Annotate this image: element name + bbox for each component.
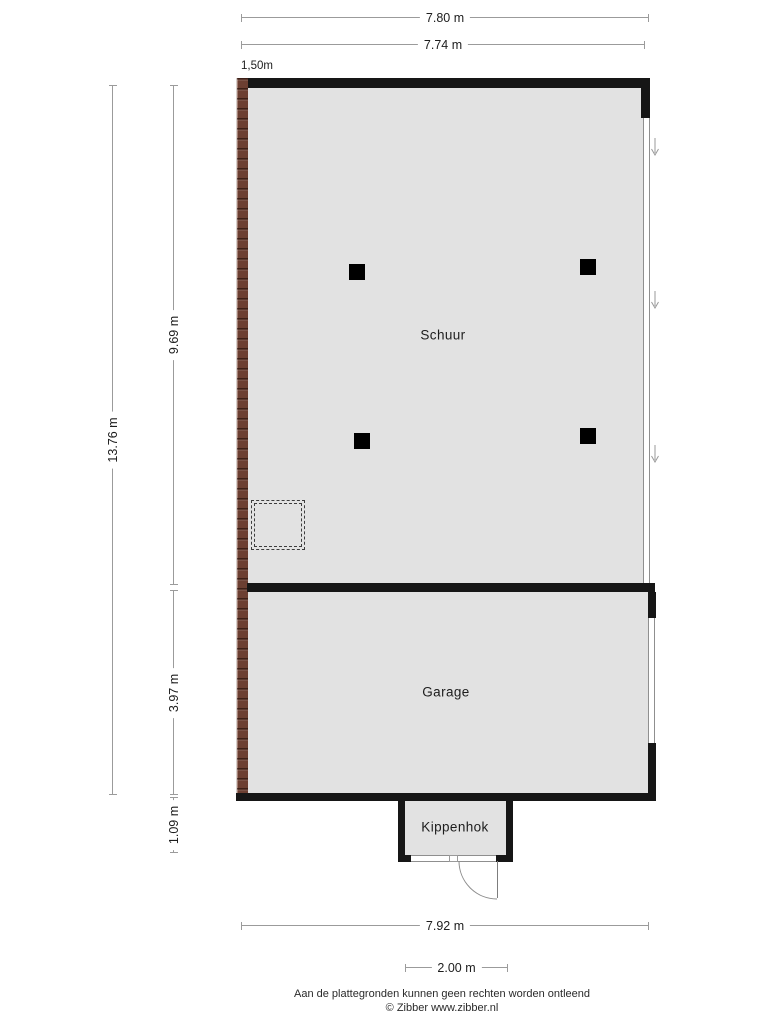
dim-width-outer: 7.80 m	[241, 17, 649, 18]
kippenhok-bottom-wall-left	[398, 855, 411, 862]
slide-direction-arrow-icon	[650, 291, 660, 311]
room-label-schuur: Schuur	[420, 328, 465, 343]
dim-garage-depth: 3.97 m	[173, 590, 174, 795]
dim-width-outer-label: 7.80 m	[420, 11, 470, 25]
room-label-kippenhok: Kippenhok	[421, 820, 488, 835]
slide-direction-arrow-icon	[650, 138, 660, 158]
wall-height-note: 1,50m	[241, 60, 273, 72]
dim-kippenhok-width: 2.00 m	[405, 967, 508, 968]
pillar	[580, 259, 596, 275]
garage-right-wall-top	[648, 592, 656, 618]
dim-height-total-label: 13.76 m	[106, 411, 120, 468]
pillar	[349, 264, 365, 280]
pillar	[580, 428, 596, 444]
floorplan-page: { "plan": { "rooms": [ { "name": "Schuur…	[0, 0, 768, 1024]
pillar	[354, 433, 370, 449]
slide-direction-arrow-icon	[650, 445, 660, 465]
dim-kippenhok-depth: 1.09 m	[173, 797, 174, 853]
dim-kippenhok-width-label: 2.00 m	[431, 961, 481, 975]
footer-credit: © Zibber www.zibber.nl	[130, 1001, 754, 1015]
dim-kippenhok-depth-label: 1.09 m	[167, 800, 181, 850]
dim-schuur-depth: 9.69 m	[173, 85, 174, 585]
garage-bottom-wall	[236, 793, 656, 801]
schuur-top-wall	[238, 78, 650, 88]
dim-width-bottom-label: 7.92 m	[420, 919, 470, 933]
dashed-feature-outline	[251, 500, 305, 550]
door-swing-arc	[458, 860, 498, 900]
left-brick-wall	[236, 78, 248, 800]
schuur-right-wall-top	[641, 88, 650, 118]
footer: Aan de plattegronden kunnen geen rechten…	[130, 987, 754, 1015]
schuur-garage-divider-wall	[247, 583, 655, 592]
dim-width-bottom: 7.92 m	[241, 925, 649, 926]
room-label-garage: Garage	[422, 685, 469, 700]
kippenhok-left-wall	[398, 801, 405, 855]
dim-height-total: 13.76 m	[112, 85, 113, 795]
dim-width-inner-label: 7.74 m	[418, 38, 468, 52]
footer-disclaimer: Aan de plattegronden kunnen geen rechten…	[130, 987, 754, 1001]
kippenhok-right-wall	[506, 801, 513, 855]
schuur-right-sliding-window	[643, 118, 650, 583]
garage-right-window	[648, 618, 655, 743]
dim-schuur-depth-label: 9.69 m	[167, 310, 181, 360]
dashed-feature-outline-inner	[254, 503, 302, 547]
kippenhok-bottom-wall-right	[496, 855, 513, 862]
garage-right-wall-bottom	[648, 743, 656, 793]
door-jamb-mark	[449, 855, 458, 862]
dim-width-inner: 7.74 m	[241, 44, 645, 45]
dim-garage-depth-label: 3.97 m	[167, 667, 181, 717]
